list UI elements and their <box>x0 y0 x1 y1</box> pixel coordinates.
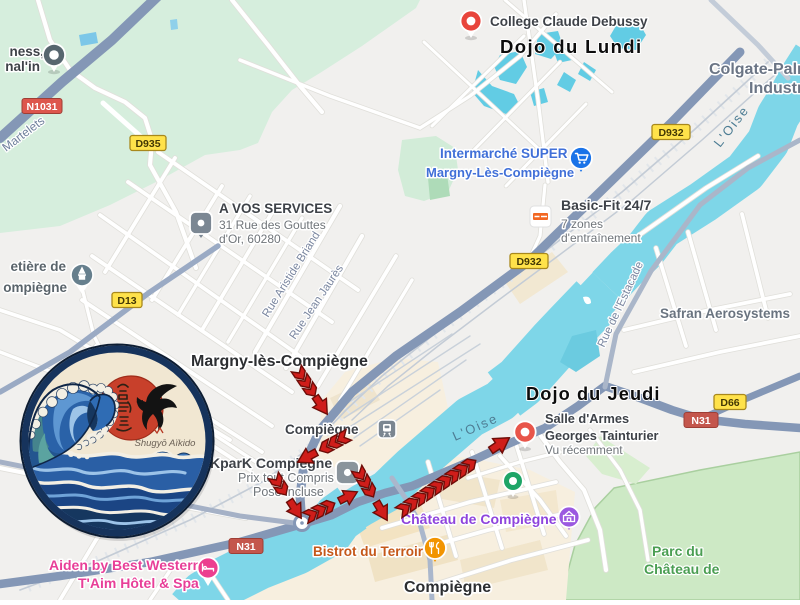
svg-text:ness,: ness, <box>9 44 44 59</box>
svg-text:Dojo du Lundi: Dojo du Lundi <box>500 36 643 57</box>
svg-text:Margny-lès-Compiègne: Margny-lès-Compiègne <box>191 353 368 370</box>
svg-text:Margny-Lès-Compiègne: Margny-Lès-Compiègne <box>426 165 574 180</box>
svg-text:7 zones: 7 zones <box>561 217 603 231</box>
svg-text:etière de: etière de <box>10 259 66 274</box>
svg-text:nal'in: nal'in <box>5 59 40 74</box>
svg-text:Château de: Château de <box>644 561 720 577</box>
svg-text:31 Rue des Gouttes: 31 Rue des Gouttes <box>219 218 326 232</box>
svg-text:D13: D13 <box>117 295 136 307</box>
svg-text:A VOS SERVICES: A VOS SERVICES <box>219 201 332 216</box>
svg-text:Safran Aerosystems: Safran Aerosystems <box>660 306 790 321</box>
svg-text:Aiden by Best Western: Aiden by Best Western <box>49 557 201 573</box>
svg-text:Georges Tainturier: Georges Tainturier <box>545 428 659 443</box>
svg-text:Pose incluse: Pose incluse <box>253 485 324 499</box>
svg-text:d'entraînement: d'entraînement <box>561 231 641 245</box>
svg-text:Parc du: Parc du <box>652 543 703 559</box>
svg-text:D66: D66 <box>720 397 739 409</box>
svg-text:Shugyō Aïkido: Shugyō Aïkido <box>135 438 196 449</box>
svg-text:D932: D932 <box>658 127 683 139</box>
svg-text:D935: D935 <box>135 138 160 150</box>
svg-text:N1031: N1031 <box>27 101 58 113</box>
svg-text:Bistrot du Terroir: Bistrot du Terroir <box>313 544 424 559</box>
svg-text:Industrie: Industrie <box>749 80 800 97</box>
svg-text:Compiègne: Compiègne <box>404 579 491 596</box>
svg-text:D932: D932 <box>516 256 541 268</box>
svg-text:Compiègne: Compiègne <box>285 422 359 437</box>
svg-text:College Claude Debussy: College Claude Debussy <box>490 14 648 29</box>
svg-text:d'Or, 60280: d'Or, 60280 <box>219 232 281 246</box>
svg-text:N31: N31 <box>691 415 710 427</box>
svg-text:ompiègne: ompiègne <box>3 280 67 295</box>
svg-text:Basic-Fit 24/7: Basic-Fit 24/7 <box>561 197 651 213</box>
svg-text:Colgate-Palm: Colgate-Palm <box>709 61 800 78</box>
svg-text:Intermarché SUPER: Intermarché SUPER <box>440 146 568 161</box>
svg-text:Dojo du Jeudi: Dojo du Jeudi <box>526 384 661 404</box>
svg-text:Salle d'Armes: Salle d'Armes <box>545 411 629 426</box>
svg-text:N31: N31 <box>236 541 255 553</box>
svg-text:T'Aim Hôtel & Spa: T'Aim Hôtel & Spa <box>78 575 199 591</box>
svg-text:Vu récemment: Vu récemment <box>545 443 623 457</box>
svg-text:Château de Compiègne: Château de Compiègne <box>401 511 557 527</box>
